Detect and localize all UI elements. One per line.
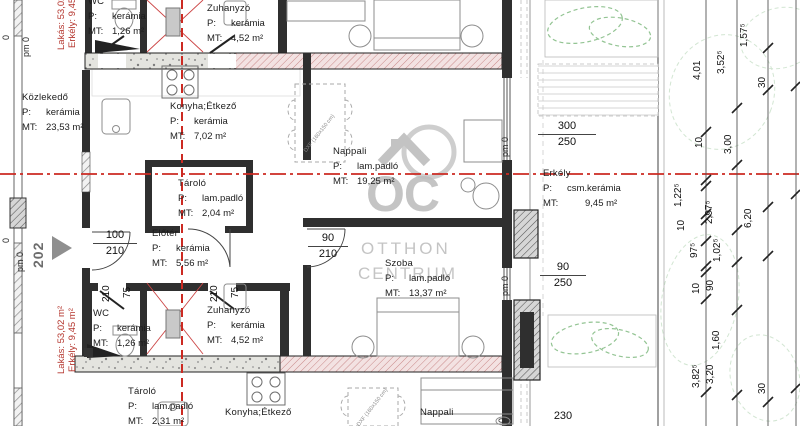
szoba-door-dim: 90210: [308, 231, 348, 262]
zero-label: 0: [1, 35, 12, 40]
window-dim: 300250: [538, 119, 596, 150]
room-label-tarolo-top: Tároló P:lam.padló MT:2,04 m²: [178, 176, 243, 221]
door-dim-75: 75: [122, 287, 133, 298]
dim-v18: 30: [757, 383, 768, 394]
dim-v1: 4,01: [692, 61, 703, 80]
wardrobe-outline: [287, 1, 365, 21]
parapet-label: pm 0: [15, 252, 26, 272]
parapet-label: pm 0: [497, 418, 508, 426]
room-label-wc-bottom: WC P:kerámia MT:1,26 m²: [93, 306, 151, 351]
unit-balcony-label: Erkély: 9,45 m²: [68, 308, 78, 372]
unit-balcony-label: Erkély: 9,45 m²: [68, 0, 78, 48]
room-label-zuhanyzo-top: Zuhanyzó P:kerámia MT:4,52 m²: [207, 1, 265, 46]
room-label-eloter: Előtér P:kerámia MT:5,56 m²: [152, 226, 210, 271]
dim-v14: 90: [705, 280, 716, 291]
room-label-szoba: Szoba P:lam.padló MT:13,37 m²: [385, 256, 450, 301]
balcony-pillar: [514, 210, 538, 258]
dim-v2: 3,52⁵: [716, 50, 727, 74]
parapet-label: pm 0: [21, 37, 32, 57]
entry-arrow-icon: [52, 236, 72, 260]
dim-v12: 1,02⁵: [712, 238, 723, 262]
unit-area-label: Lakás: 53,02 m²: [57, 0, 67, 50]
dim-v6: 3,00: [723, 135, 734, 154]
floor-plan: OC OTTHON CENTRUM Közlekedő P:kerámia MT…: [0, 0, 800, 426]
door-dim-210: 210: [209, 285, 220, 302]
balcony-door-dim: 90250: [540, 260, 586, 291]
kitchen-counter: [92, 69, 300, 96]
sideboard-outline: [464, 120, 502, 162]
room-label-tarolo-bottom: Tároló P:lam.padló MT:2,31 m²: [128, 384, 193, 426]
room-label-erkely: Erkély P:csm.kerámia MT:9,45 m²: [543, 166, 621, 211]
unit-number: 202: [33, 242, 44, 268]
door-gap: [208, 54, 236, 68]
dim-v10: 10: [691, 283, 702, 294]
dim-v16: 3,82⁵: [691, 364, 702, 388]
walls: [10, 0, 540, 426]
bottom-window-dim: 230: [541, 409, 585, 424]
window-hatch: [14, 0, 22, 36]
parapet-label: pm 0: [500, 276, 511, 296]
shower-column: [166, 310, 180, 338]
dim-v3: 1,57⁵: [739, 23, 750, 47]
door-dim-75: 75: [230, 287, 241, 298]
room-label-konyha-bottom: Konyha;Étkező: [225, 405, 292, 420]
dim-v5: 10: [694, 137, 705, 148]
entry-door-dim: 100210: [93, 228, 137, 259]
door-gap: [98, 54, 126, 68]
room-label-kozlekedo: Közlekedő P:kerámia MT:23,53 m²: [22, 90, 84, 135]
dim-v7: 1,22⁵: [673, 183, 684, 207]
deck-boards: [538, 64, 658, 116]
dim-v8: 10: [676, 220, 687, 231]
dim-v4: 30: [757, 77, 768, 88]
balcony-zone: [521, 0, 800, 426]
parapet-label: pm 0: [500, 137, 511, 157]
round-table-outline: [473, 183, 499, 209]
room-label-wc-top: WC P:kerámia MT:1,26 m²: [88, 0, 146, 39]
unit-area-label: Lakás: 53,02 m²: [57, 306, 67, 374]
window-hatch: [14, 388, 22, 426]
dim-v9: 97⁵: [689, 243, 700, 258]
room-label-konyha-top: Konyha;Étkező P:kerámia MT:7,02 m²: [170, 99, 237, 144]
bed-outline: [349, 0, 483, 50]
dim-v13: 6,20: [743, 209, 754, 228]
room-label-nappali-top: Nappali P:lam.padló MT:19,25 m²: [333, 144, 398, 189]
dim-v17: 3,20: [705, 365, 716, 384]
dim-v11: 2,97⁵: [704, 200, 715, 224]
zero-label: 0: [1, 238, 12, 243]
dim-v15: 1,60: [711, 331, 722, 350]
bed-outline: [352, 298, 484, 358]
room-label-zuhanyzo-bottom: Zuhanyzó P:kerámia MT:4,52 m²: [207, 303, 265, 348]
shower-column: [166, 8, 180, 36]
room-label-nappali-bottom: Nappali: [420, 405, 454, 420]
shaft-wedge: [95, 40, 140, 53]
door-dim-210: 210: [101, 285, 112, 302]
